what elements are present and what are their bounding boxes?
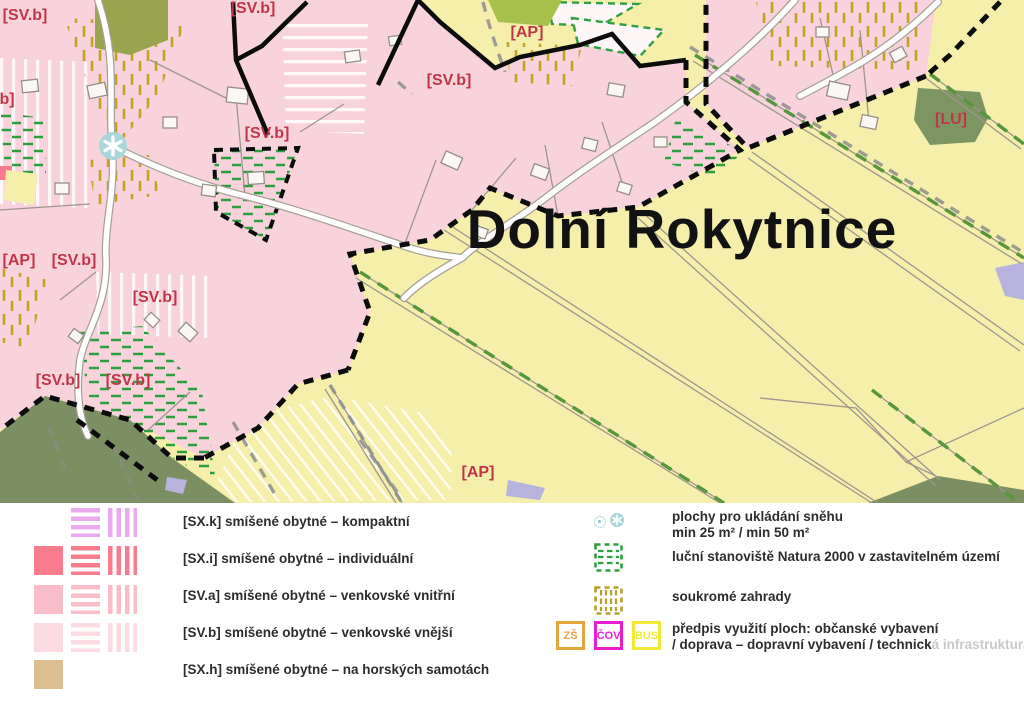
zone-label: [SV.b] (52, 252, 97, 269)
usage-line2: / doprava – dopravní vybavení / technick… (672, 637, 1024, 653)
zone-label: [SV.b] (245, 125, 290, 142)
legend-item-sxi: [SX.i] smíšené obytné – individuální (183, 551, 413, 566)
zone-label: [SV.b] (231, 0, 276, 17)
swatch-svb-vstripes (108, 623, 137, 652)
swatch-sva-vstripes (108, 585, 137, 614)
map-legend: [SX.k] smíšené obytné – kompaktní [SX.i]… (0, 503, 1024, 703)
zone-label: [AP] (462, 464, 495, 481)
settlement-title: Dolní Rokytnice (467, 198, 898, 260)
swatch-sxi-solid (34, 546, 63, 575)
zone-label: [SV.b] (106, 372, 151, 389)
usage-line2-faded: á infrastruktura (932, 637, 1024, 652)
natura-swatch (594, 543, 623, 572)
zoning-map-canvas: [SV.b][SV.b][AP][SV.b][SV.b][LU]b][AP][S… (0, 0, 1024, 503)
legend-item-snow: plochy pro ukládání sněhu min 25 m² / mi… (672, 509, 843, 541)
swatch-sxk-vstripes (108, 508, 137, 537)
snow-storage-marker (99, 132, 127, 160)
land-use-plan-page: [SV.b][SV.b][AP][SV.b][SV.b][LU]b][AP][S… (0, 0, 1024, 703)
swatch-sxi-vstripes (108, 546, 137, 575)
cov-label: ČOV (597, 630, 621, 642)
legend-item-sxh: [SX.h] smíšené obytné – na horských samo… (183, 662, 489, 677)
snow-small-icon (594, 516, 606, 528)
bus-stop-box: BUS (632, 621, 661, 650)
snow-asterisk-icon (609, 512, 625, 528)
zs-school-box: ZŠ (556, 621, 585, 650)
swatch-svb-solid (34, 623, 63, 652)
legend-item-usage: předpis využití ploch: občanské vybavení… (672, 621, 1024, 653)
zs-label: ZŠ (563, 630, 577, 642)
legend-item-gardens: soukromé zahrady (672, 589, 791, 604)
legend-item-natura: luční stanoviště Natura 2000 v zastavite… (672, 549, 1000, 564)
bus-label: BUS (635, 630, 658, 642)
snow-line1: plochy pro ukládání sněhu (672, 509, 843, 525)
zoning-map[interactable]: [SV.b][SV.b][AP][SV.b][SV.b][LU]b][AP][S… (0, 0, 1024, 503)
swatch-sxk-hstripes (71, 508, 100, 537)
swatch-svb-hstripes (71, 623, 100, 652)
zone-label: b] (0, 91, 15, 108)
zone-label: [SV.b] (133, 289, 178, 306)
swatch-sxh-solid (34, 660, 63, 689)
zone-label: [AP] (511, 24, 544, 41)
usage-line1: předpis využití ploch: občanské vybavení (672, 621, 1024, 637)
swatch-sxi-hstripes (71, 546, 100, 575)
zone-label: [SV.b] (36, 372, 81, 389)
snow-line2: min 25 m² / min 50 m² (672, 525, 843, 541)
legend-item-sxk: [SX.k] smíšené obytné – kompaktní (183, 514, 410, 529)
zone-label: [LU] (935, 111, 967, 128)
zone-label: [SV.b] (427, 72, 472, 89)
legend-item-svb: [SV.b] smíšené obytné – venkovské vnější (183, 625, 453, 640)
zone-label: [SV.b] (3, 7, 48, 24)
swatch-sva-hstripes (71, 585, 100, 614)
legend-item-sva: [SV.a] smíšené obytné – venkovské vnitřn… (183, 588, 455, 603)
gardens-swatch (594, 586, 623, 615)
zone-label: [AP] (3, 252, 36, 269)
swatch-sva-solid (34, 585, 63, 614)
cov-wwtp-box: ČOV (594, 621, 623, 650)
